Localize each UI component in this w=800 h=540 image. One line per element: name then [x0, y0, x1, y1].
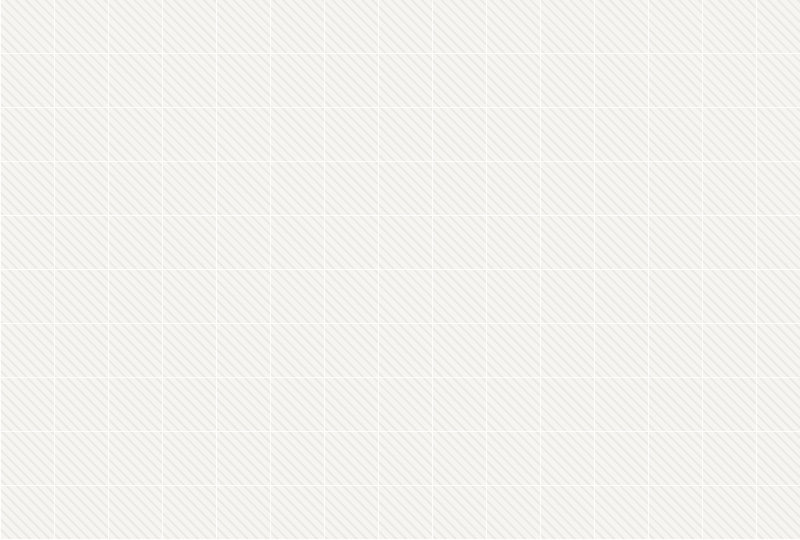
features-layer [0, 0, 800, 540]
campus-map [0, 0, 800, 540]
